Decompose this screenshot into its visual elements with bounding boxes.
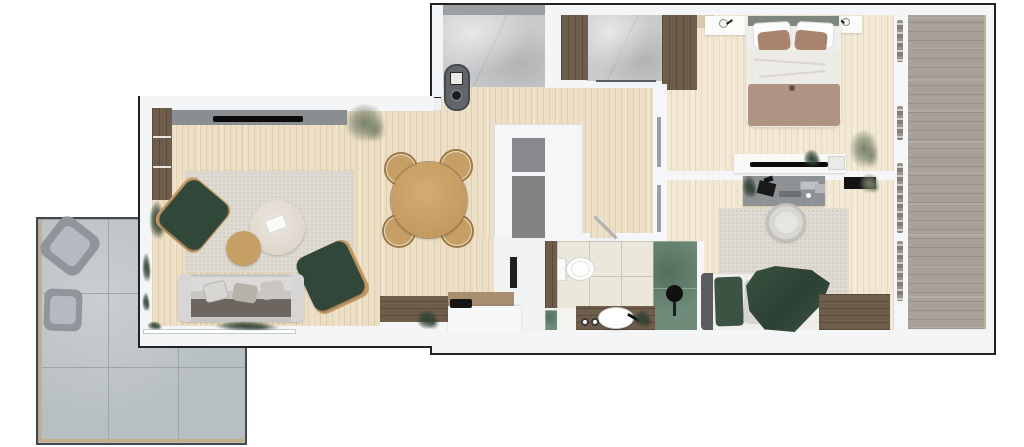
office-chair-seat	[775, 212, 798, 233]
desk-keyboard	[779, 191, 801, 197]
bathroom-top-wall-right	[616, 233, 655, 241]
terrace-edge-bottom	[39, 439, 244, 442]
floor-plan	[0, 0, 1024, 447]
kitchen-hob	[450, 299, 472, 308]
bookshelf-shelf-line-2	[153, 166, 171, 168]
kitchen-island	[448, 306, 521, 333]
bathroom-green-corner	[545, 310, 557, 330]
outdoor-chair-cushion	[50, 296, 77, 325]
shower-bottom-wall	[545, 81, 662, 88]
vanity-soap-1	[581, 318, 589, 326]
kitchen-oven-column-lower	[512, 176, 545, 243]
right-block-right-wall	[986, 5, 994, 353]
balcony-deck	[908, 15, 986, 329]
toilet-seat	[571, 261, 590, 277]
single-bed-headboard	[701, 273, 713, 330]
curtain-3	[897, 163, 903, 233]
bathroom-mat	[557, 308, 576, 330]
shower-wardrobe-left	[561, 15, 588, 80]
left-block-top-wall	[140, 96, 434, 111]
desk-mouse	[806, 193, 811, 198]
bedroom-door-leaf	[657, 117, 661, 167]
living-plant	[344, 103, 390, 147]
curtain-4	[897, 241, 903, 301]
curtain-1	[897, 20, 903, 62]
bathroom-top-wall-left	[545, 233, 590, 241]
kitchen-wall-radiator	[510, 257, 517, 288]
tv-screen	[213, 116, 303, 122]
single-bed-pillow-green	[714, 277, 744, 327]
sofa-pillow-3	[260, 280, 285, 301]
bed-duvet	[747, 50, 840, 86]
shower-glass-door	[596, 80, 656, 82]
sofa-armrest-right	[291, 274, 304, 322]
entry-appliance-panel	[450, 72, 463, 85]
wall-bookshelf	[152, 108, 172, 200]
shower-drain	[666, 285, 683, 302]
shower-wardrobe-right	[662, 15, 697, 90]
entry-top-wall	[432, 5, 545, 15]
desk-tray	[815, 184, 825, 193]
shower-floor-marble	[586, 15, 664, 81]
bedroom-plant	[849, 129, 882, 173]
bed-blanket	[748, 84, 840, 126]
vanity-sink	[598, 307, 634, 329]
sofa-armrest-left	[178, 274, 191, 322]
curtain-2	[897, 106, 903, 140]
shower-left-wall	[545, 15, 561, 84]
side-table	[226, 231, 261, 266]
kitchen-oven-column-upper	[512, 138, 545, 172]
bedroom-chest	[819, 294, 890, 330]
entry-left-wall	[432, 5, 443, 97]
bookshelf-shelf-line-1	[153, 136, 171, 138]
bathroom-side-strip	[545, 241, 557, 308]
office-door-leaf	[657, 185, 661, 232]
sofa-pillow-2	[232, 282, 259, 304]
entry-appliance-knob	[451, 90, 462, 101]
blanket-button	[789, 85, 795, 91]
office-shelf-plant	[859, 173, 882, 196]
shower-drain-stem	[673, 301, 676, 316]
dresser-books	[828, 156, 845, 170]
right-block-bottom-wall	[432, 330, 994, 353]
dining-table	[391, 162, 467, 238]
vanity-soap-2	[591, 318, 599, 326]
toilet-tank	[557, 258, 566, 281]
